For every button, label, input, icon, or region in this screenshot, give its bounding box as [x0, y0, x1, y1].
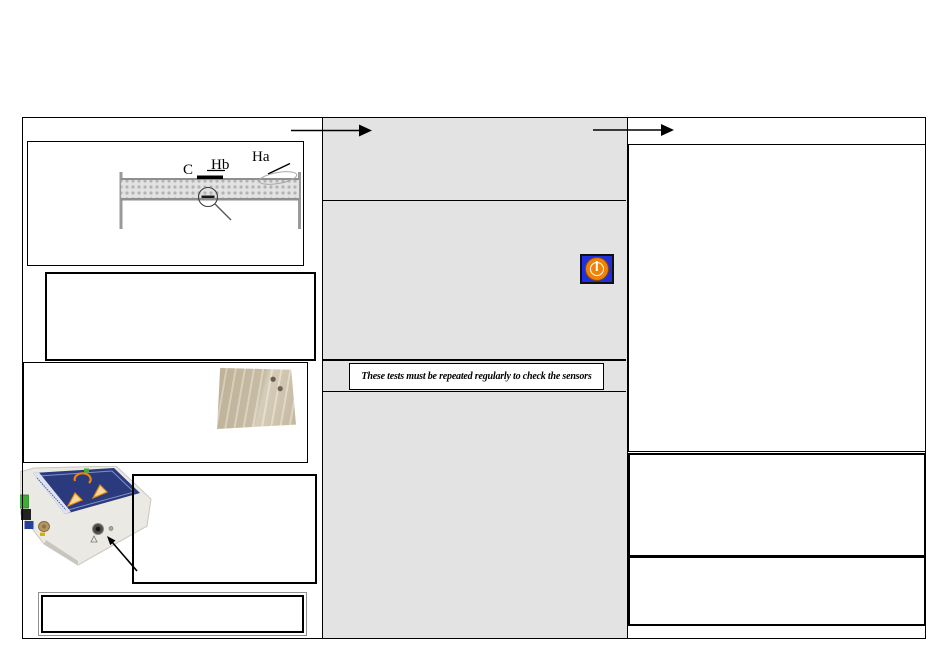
sensor-socket-hole: [96, 527, 101, 532]
middle-column-divider-3: [323, 391, 626, 393]
bottom-note-box: [38, 592, 307, 636]
blue-connector: [25, 521, 34, 529]
middle-column-divider-2: [323, 359, 626, 361]
green-mark: [84, 469, 89, 473]
bed-sensor-diagram-box: C Hb Ha: [27, 141, 304, 266]
right-main-box: [628, 144, 926, 452]
document-page: C Hb Ha: [0, 0, 950, 660]
power-icon: [585, 257, 609, 281]
power-icon-bar: [596, 261, 598, 271]
notice-text: These tests must be repeated regularly t…: [361, 371, 591, 382]
power-button-icon: [580, 254, 614, 284]
yellow-detail: [40, 533, 45, 537]
sensor-c-mark: [197, 176, 223, 180]
right-lower-divider: [630, 555, 924, 558]
bed-sensor-diagram: C Hb Ha: [28, 142, 301, 263]
sensor-sheet-photo: [217, 366, 296, 429]
right-lower-box: [628, 453, 926, 626]
small-hole: [109, 527, 113, 531]
brass-connector-pin: [42, 525, 46, 529]
black-connector: [21, 509, 31, 520]
bottom-note-box-inner: [41, 595, 304, 633]
device-note-box: [132, 474, 317, 584]
middle-column-divider-1: [323, 200, 626, 202]
notice-box: These tests must be repeated regularly t…: [349, 363, 604, 391]
diagram-label-ha: Ha: [252, 149, 270, 165]
diagram-label-c: C: [183, 162, 193, 178]
empty-note-box: [45, 272, 316, 361]
green-connector: [20, 495, 29, 508]
